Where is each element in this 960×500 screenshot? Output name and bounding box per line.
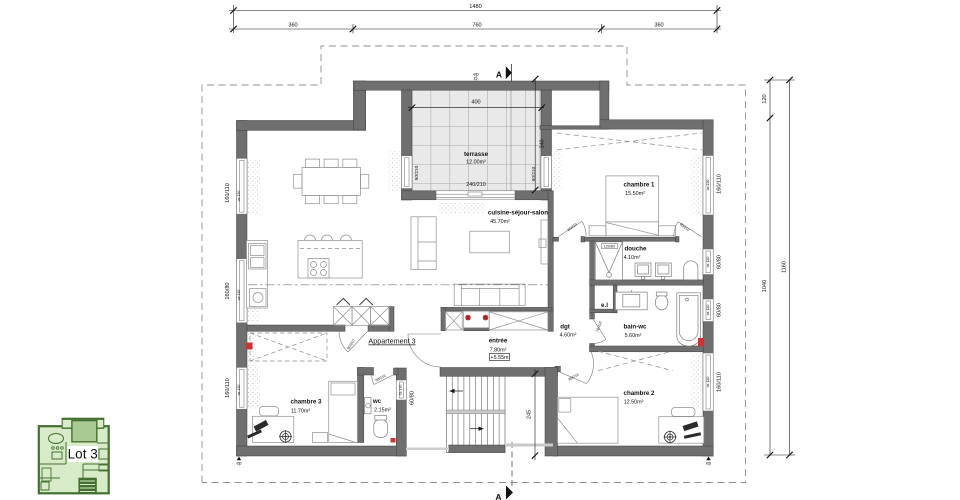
svg-text:dgt: dgt — [560, 324, 570, 331]
svg-text:160/110: 160/110 — [225, 183, 231, 203]
svg-text:4.10m²: 4.10m² — [624, 255, 641, 261]
svg-text:7.80m²: 7.80m² — [490, 348, 507, 354]
svg-text:1040: 1040 — [762, 280, 768, 292]
svg-text:2.15m²: 2.15m² — [374, 408, 391, 414]
svg-text:60/80: 60/80 — [717, 303, 723, 317]
svg-text:+5.55m: +5.55m — [490, 355, 509, 361]
svg-text:160/80: 160/80 — [225, 282, 231, 299]
svg-text:1160: 1160 — [782, 261, 788, 273]
svg-text:5.60m²: 5.60m² — [625, 333, 642, 339]
svg-text:45.70m²: 45.70m² — [490, 219, 510, 225]
svg-text:15.50m²: 15.50m² — [625, 191, 645, 197]
svg-text:terrasse: terrasse — [464, 151, 489, 158]
svg-text:360: 360 — [288, 23, 297, 29]
svg-text:A: A — [496, 70, 502, 80]
svg-text:ca 130: ca 130 — [706, 377, 710, 388]
svg-text:90/210: 90/210 — [414, 165, 420, 180]
svg-text:760: 760 — [472, 23, 481, 29]
svg-text:245: 245 — [527, 410, 533, 419]
svg-text:160/110: 160/110 — [717, 174, 723, 194]
svg-text:11.70m²: 11.70m² — [291, 409, 311, 415]
svg-text:chambre 2: chambre 2 — [624, 390, 656, 397]
svg-text:400: 400 — [471, 100, 480, 106]
svg-text:160/110: 160/110 — [717, 372, 723, 392]
svg-text:ep: ep — [473, 73, 479, 78]
svg-text:160/110: 160/110 — [225, 378, 231, 398]
svg-text:ca 130: ca 130 — [706, 257, 710, 268]
svg-text:90/210: 90/210 — [531, 166, 537, 181]
svg-text:340: 340 — [540, 139, 546, 148]
svg-text:120/80: 120/80 — [604, 245, 615, 249]
svg-text:ca 130: ca 130 — [399, 385, 403, 396]
svg-text:240/210: 240/210 — [466, 182, 486, 188]
svg-text:1480: 1480 — [469, 4, 481, 10]
svg-text:chambre 1: chambre 1 — [624, 182, 656, 189]
svg-text:Lot 3: Lot 3 — [68, 447, 98, 462]
svg-text:A: A — [495, 492, 501, 500]
svg-text:ca 130: ca 130 — [237, 290, 241, 301]
svg-text:chambre 3: chambre 3 — [291, 399, 323, 406]
svg-text:cuisine-séjour-salon: cuisine-séjour-salon — [488, 210, 548, 217]
svg-text:360: 360 — [654, 23, 663, 29]
svg-text:ca 130: ca 130 — [237, 385, 241, 396]
svg-text:entrée: entrée — [489, 338, 508, 345]
svg-text:bain-wc: bain-wc — [623, 324, 647, 331]
svg-text:120: 120 — [762, 94, 768, 103]
svg-text:60/80: 60/80 — [717, 255, 723, 269]
svg-text:wc: wc — [372, 398, 382, 405]
svg-text:ep: ep — [706, 461, 712, 466]
svg-text:e.l: e.l — [601, 302, 608, 309]
svg-text:12.00m²: 12.00m² — [466, 160, 486, 166]
svg-text:60/80: 60/80 — [410, 391, 416, 405]
svg-text:douche: douche — [624, 246, 647, 253]
svg-text:4.60m²: 4.60m² — [560, 333, 577, 339]
svg-text:ca 130: ca 130 — [706, 305, 710, 316]
svg-text:12.50m²: 12.50m² — [624, 400, 644, 406]
svg-text:ep: ep — [236, 461, 242, 466]
svg-text:ca 130: ca 130 — [237, 191, 241, 202]
svg-text:Appartement 3: Appartement 3 — [368, 337, 415, 346]
svg-text:ca 130: ca 130 — [706, 180, 710, 191]
